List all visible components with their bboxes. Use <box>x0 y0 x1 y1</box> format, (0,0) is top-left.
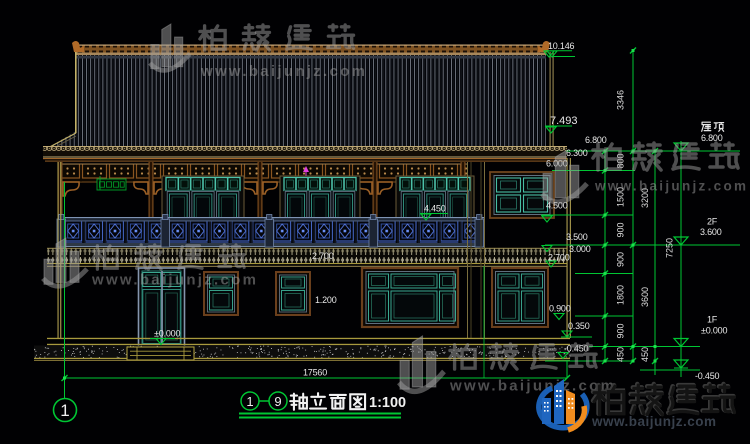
svg-text:900: 900 <box>616 323 626 338</box>
svg-text:www.baijunjz.com: www.baijunjz.com <box>594 179 748 194</box>
svg-text:900: 900 <box>616 252 626 267</box>
svg-text:www.baijunjz.com: www.baijunjz.com <box>200 63 367 80</box>
svg-text:1800: 1800 <box>616 285 626 305</box>
svg-text:www.baijunjz.com: www.baijunjz.com <box>91 272 258 289</box>
svg-text:±0.000: ±0.000 <box>154 329 180 339</box>
svg-text:4.450: 4.450 <box>424 204 446 214</box>
svg-text:0.900: 0.900 <box>549 304 571 314</box>
svg-text:1.200: 1.200 <box>315 295 337 305</box>
svg-text:450: 450 <box>616 347 626 362</box>
svg-text:2.700: 2.700 <box>312 251 334 261</box>
svg-text:0.350: 0.350 <box>568 321 590 331</box>
svg-text:7.493: 7.493 <box>550 115 578 127</box>
svg-text:6.800: 6.800 <box>585 135 607 145</box>
svg-text:17560: 17560 <box>303 368 327 378</box>
svg-text:1: 1 <box>246 394 253 409</box>
svg-text:1F: 1F <box>707 315 718 325</box>
svg-text:6.300: 6.300 <box>566 148 588 158</box>
svg-text:3.600: 3.600 <box>700 227 722 237</box>
svg-text:±0.000: ±0.000 <box>701 326 727 336</box>
svg-text:2.700: 2.700 <box>548 253 570 263</box>
svg-text:900: 900 <box>616 222 626 237</box>
svg-text:6.800: 6.800 <box>701 133 723 143</box>
svg-text:9: 9 <box>274 394 281 409</box>
svg-text:3.000: 3.000 <box>569 244 591 254</box>
svg-text:450: 450 <box>640 347 650 362</box>
svg-text:3346: 3346 <box>616 90 626 110</box>
svg-text:1:100: 1:100 <box>369 395 406 411</box>
svg-text:3600: 3600 <box>640 287 650 307</box>
svg-text:1: 1 <box>60 401 69 420</box>
svg-text:www.baijunjz.com: www.baijunjz.com <box>591 414 717 429</box>
svg-text:2F: 2F <box>707 217 718 227</box>
svg-text:7250: 7250 <box>665 238 675 258</box>
svg-text:3.500: 3.500 <box>566 232 588 242</box>
svg-text:-0.450: -0.450 <box>695 371 720 381</box>
svg-text:10.146: 10.146 <box>548 41 575 51</box>
